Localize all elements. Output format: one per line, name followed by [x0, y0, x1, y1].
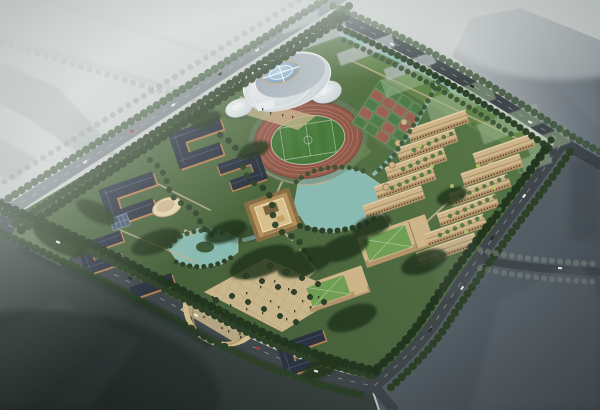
campus-aerial-rendering: Aerial rendering of a university campus … [0, 0, 600, 410]
rendering-canvas: Aerial rendering of a university campus … [0, 0, 600, 410]
junction-south [367, 379, 381, 393]
